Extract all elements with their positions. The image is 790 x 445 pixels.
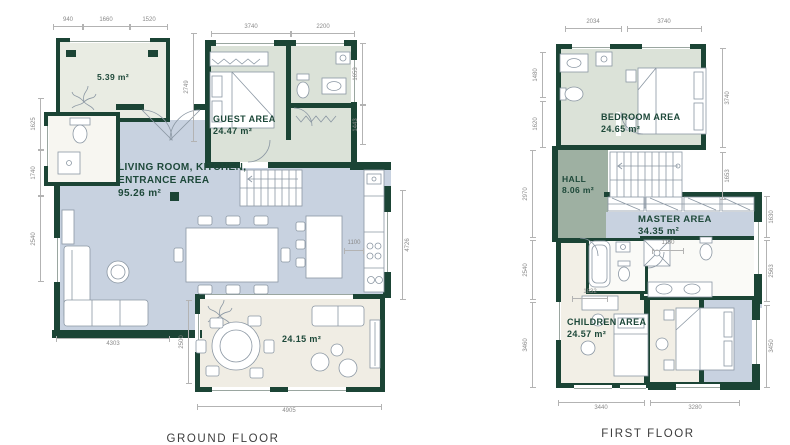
dimension-line: [211, 33, 291, 34]
sink: [336, 52, 350, 64]
toilet: [297, 74, 309, 98]
dimension-line: [197, 406, 382, 407]
dimension-label: 4303: [106, 341, 119, 347]
dimension-label: 1740: [31, 166, 37, 179]
corridor-wardrobe: [296, 116, 336, 122]
dimension-line: [362, 105, 363, 145]
shower: [58, 152, 80, 174]
dimension-line: [565, 28, 622, 29]
dimension-line: [627, 28, 702, 29]
toilet: [700, 237, 712, 260]
dimension-line: [344, 250, 364, 251]
terrace-table: [196, 316, 274, 378]
room-name: MASTER AREA: [638, 214, 712, 226]
room-name: GUEST AREA: [213, 114, 276, 126]
sink: [596, 52, 612, 66]
dimension-line: [40, 196, 41, 282]
dimension-line: [532, 150, 533, 238]
entrance-door: [142, 110, 200, 140]
dimension-label: 1630: [769, 210, 775, 223]
dimension-line: [130, 26, 168, 27]
toilet: [70, 118, 90, 143]
plant-icon: [72, 86, 96, 110]
room-label-guest: GUEST AREA 24.47 m²: [213, 114, 276, 137]
dimension-label: 1620: [533, 117, 539, 130]
room-label-children: CHILDREN AREA 24.57 m²: [567, 317, 646, 340]
room-name: BEDROOM AREA: [601, 112, 680, 124]
dimension-line: [532, 240, 533, 300]
room-area: 24.15 m²: [282, 334, 321, 346]
dimension-label: 1832: [583, 289, 596, 295]
dimension-line: [766, 305, 767, 388]
dimension-line: [722, 48, 723, 148]
dimension-label: 1443: [353, 118, 359, 131]
dimension-line: [766, 240, 767, 302]
dimension-label: 1480: [533, 68, 539, 81]
room-name: CHILDREN AREA: [567, 317, 646, 329]
dimension-label: 3740: [657, 19, 670, 25]
dimension-line: [56, 338, 170, 339]
kitchen-counter: [364, 170, 384, 292]
dimension-label: 2540: [31, 232, 37, 245]
ground-floor-title: GROUND FLOOR: [158, 433, 288, 445]
kitchen-island: [296, 216, 342, 278]
wardrobe-row: [608, 197, 754, 211]
room-area: 24.47 m²: [213, 126, 276, 138]
dimension-line: [722, 152, 723, 200]
first-floor-title: FIRST FLOOR: [598, 428, 698, 440]
dimension-label: 1520: [142, 17, 155, 23]
washbasin: [322, 78, 346, 94]
dimension-line: [532, 302, 533, 388]
dimension-label: 3440: [594, 405, 607, 411]
room-area: 95.26 m²: [118, 187, 260, 200]
dimension-label: 3740: [725, 91, 731, 104]
toilet: [560, 87, 583, 101]
dimension-line: [766, 196, 767, 238]
dimension-line: [193, 33, 194, 142]
dimension-line: [558, 402, 645, 403]
dimension-label: 1653: [353, 67, 359, 80]
dimension-label: 3740: [244, 24, 257, 30]
dimension-label: 2034: [586, 19, 599, 25]
floor-plan-canvas: 940 1660 1520 3740 2200 2749 1653 1443 4…: [0, 0, 790, 445]
dimension-line: [53, 26, 83, 27]
dimension-line: [40, 98, 41, 150]
sofa: [62, 210, 148, 326]
toilet: [618, 261, 630, 281]
dimension-label: 1653: [725, 169, 731, 182]
dimension-label: 4726: [405, 238, 411, 251]
room-name: LIVING ROOM, KITCHEN, ENTRANCE AREA: [118, 161, 260, 187]
sink: [616, 242, 630, 252]
room-label-living: LIVING ROOM, KITCHEN, ENTRANCE AREA 95.2…: [118, 161, 260, 200]
dining-table: [174, 216, 290, 294]
dimension-label: 1625: [31, 117, 37, 130]
room-area: 34.35 m²: [638, 226, 712, 238]
dimension-label: 940: [63, 17, 73, 23]
room-label-storage: 5.39 m²: [56, 72, 170, 83]
bed-master: [656, 308, 734, 370]
dimension-label: 2200: [316, 24, 329, 30]
room-area: 5.39 m²: [56, 72, 170, 83]
dimension-label: 1180: [662, 240, 675, 246]
bathtub: [589, 241, 610, 287]
dimension-label: 2563: [769, 264, 775, 277]
dimension-line: [362, 43, 363, 105]
dimension-line: [83, 26, 130, 27]
room-label-terrace: 24.15 m²: [282, 334, 321, 346]
dimension-line: [188, 300, 189, 384]
dimension-label: 2749: [184, 80, 190, 93]
dimension-label: 2970: [523, 187, 529, 200]
dimension-label: 1660: [99, 17, 112, 23]
dimension-label: 1100: [348, 240, 361, 246]
dimension-label: 4905: [282, 408, 295, 414]
dimension-label: 2500: [179, 335, 185, 348]
room-label-hall: HALL 8.06 m²: [562, 174, 594, 196]
dimension-line: [542, 101, 543, 148]
terrace-sofa: [311, 306, 380, 377]
double-washbasin: [648, 282, 712, 297]
room-label-master: MASTER AREA 34.35 m²: [638, 214, 712, 239]
room-area: 24.65 m²: [601, 124, 680, 136]
dimension-line: [650, 402, 740, 403]
dimension-line: [542, 52, 543, 98]
dimension-label: 3460: [523, 338, 529, 351]
room-area: 8.06 m²: [562, 185, 594, 196]
washbasin: [560, 54, 588, 72]
dimension-line: [572, 298, 608, 299]
dimension-line: [291, 33, 355, 34]
dimension-label: 3280: [688, 405, 701, 411]
dimension-line: [652, 250, 684, 251]
dimension-line: [402, 190, 403, 300]
dimension-label: 3450: [769, 339, 775, 352]
dimension-label: 2540: [523, 263, 529, 276]
armchair: [581, 341, 595, 355]
wardrobe: [210, 52, 268, 66]
room-name: HALL: [562, 174, 594, 185]
room-label-bedroom-ff: BEDROOM AREA 24.65 m²: [601, 112, 680, 135]
room-area: 24.57 m²: [567, 329, 646, 341]
dimension-line: [40, 150, 41, 196]
